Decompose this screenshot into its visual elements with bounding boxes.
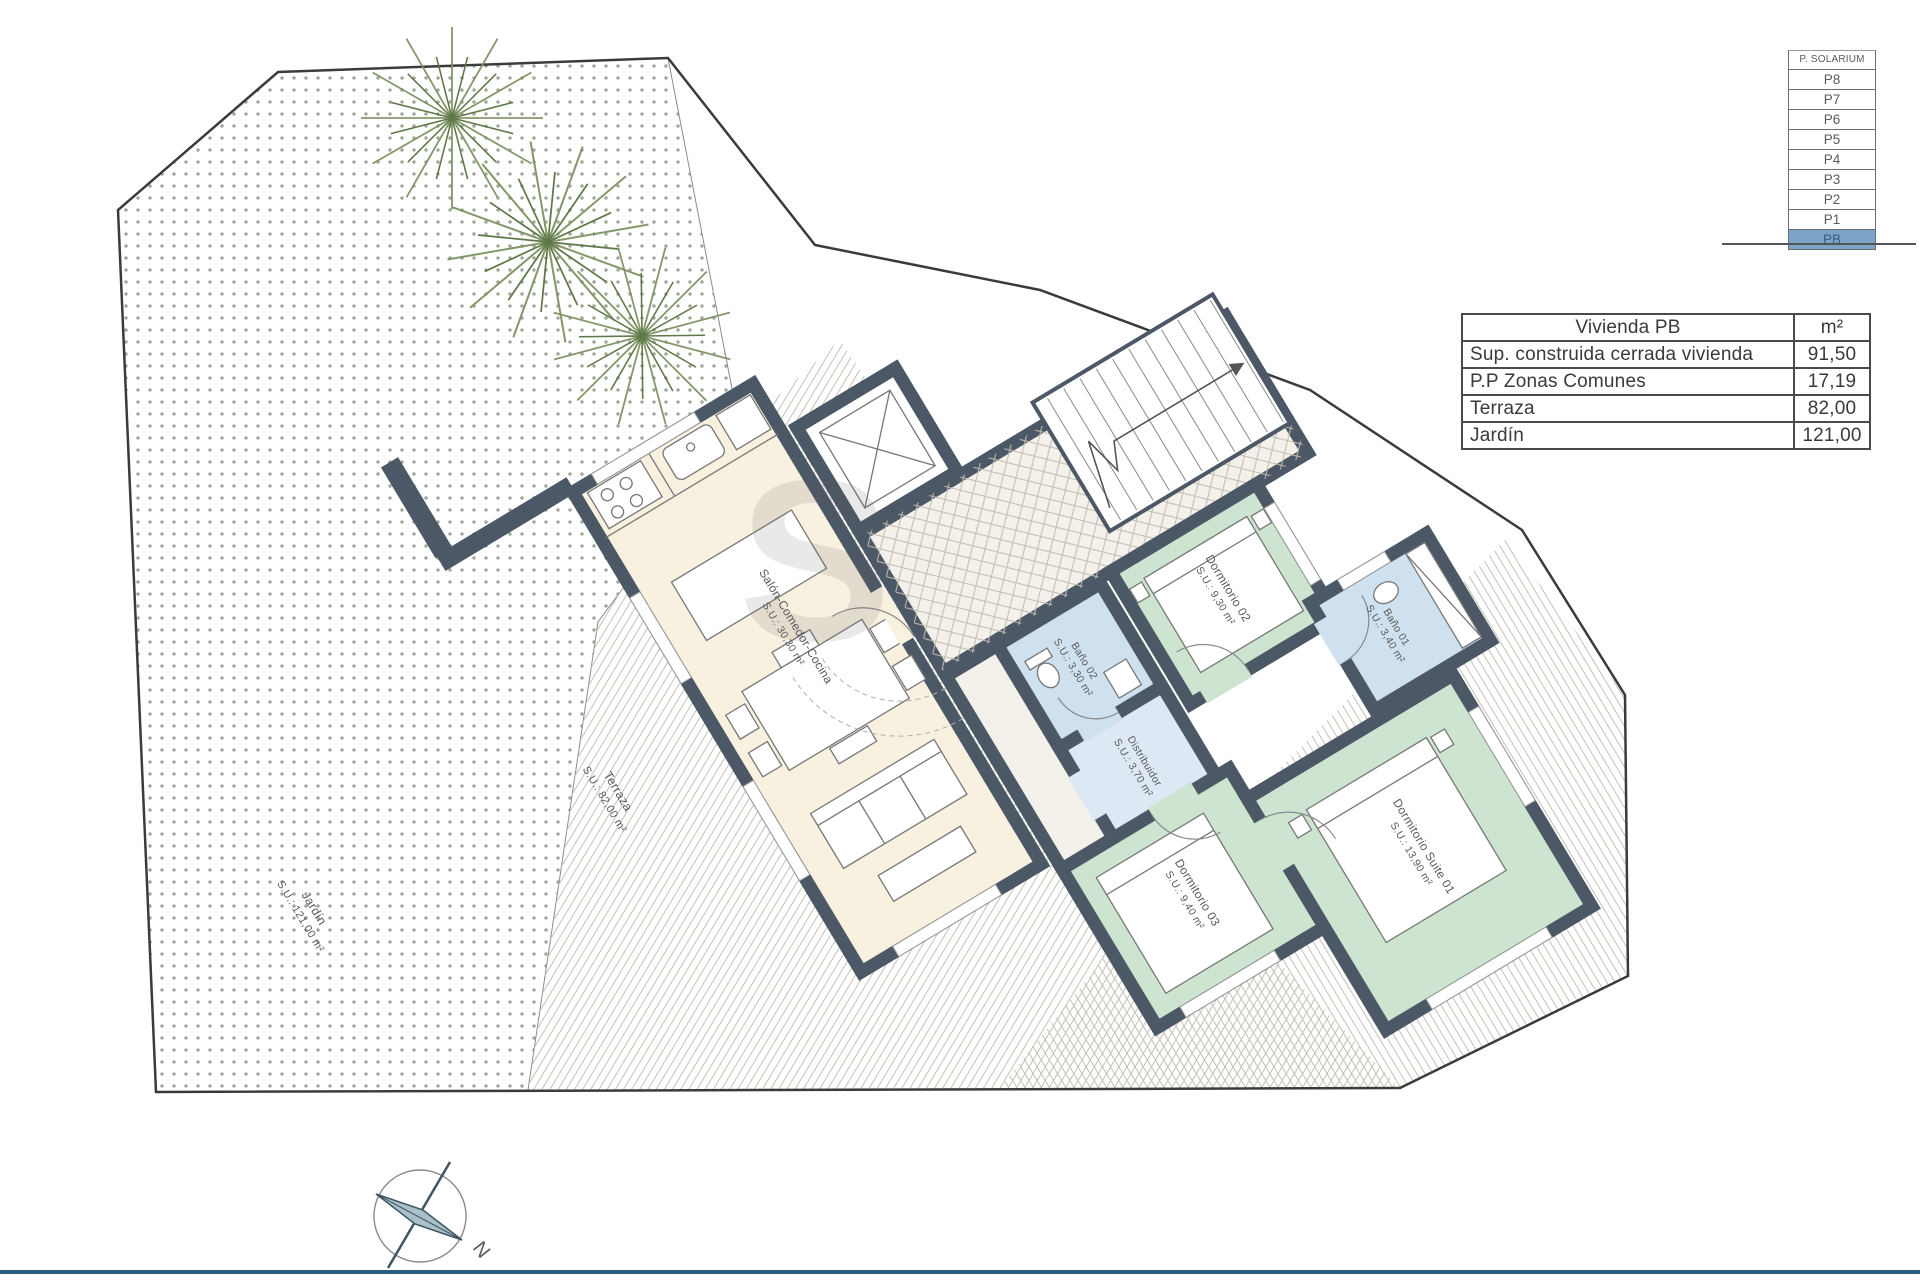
floor-row-p8[interactable]: P8 [1789,70,1875,90]
row-value: 82,00 [1793,396,1869,421]
row-label: Terraza [1463,396,1793,421]
row-label: Sup. construida cerrada vivienda [1463,342,1793,367]
floor-row-p5[interactable]: P5 [1789,130,1875,150]
area-table-row-construida: Sup. construida cerrada vivienda 91,50 [1463,340,1869,367]
row-label: Jardín [1463,423,1793,448]
floor-row-p6[interactable]: P6 [1789,110,1875,130]
row-value: 17,19 [1793,369,1869,394]
area-table-unit: m² [1793,315,1869,340]
area-table-row-jardin: Jardín 121,00 [1463,421,1869,448]
row-value: 121,00 [1793,423,1869,448]
watermark-logo: S [738,432,891,689]
floor-row-p4[interactable]: P4 [1789,150,1875,170]
area-table-title: Vivienda PB [1463,315,1793,340]
footer-accent-line [0,1270,1920,1274]
row-value: 91,50 [1793,342,1869,367]
site-plan-svg: Salón-Comedor-Cocina S.U.: 30,30 m² Dorm… [0,0,1920,1280]
floor-row-p7[interactable]: P7 [1789,90,1875,110]
area-table-row-comunes: P.P Zonas Comunes 17,19 [1463,367,1869,394]
area-table: Vivienda PB m² Sup. construida cerrada v… [1461,313,1871,450]
floor-row-p2[interactable]: P2 [1789,190,1875,210]
floor-selector-baseline [1722,243,1916,245]
north-label: N [468,1238,494,1263]
floor-plan-page: Salón-Comedor-Cocina S.U.: 30,30 m² Dorm… [0,0,1920,1280]
floor-row-pb-active[interactable]: PB [1789,230,1875,250]
floor-row-p1[interactable]: P1 [1789,210,1875,230]
floor-selector: P. SOLARIUM P8 P7 P6 P5 P4 P3 P2 P1 PB [1788,50,1876,250]
compass-rose: N [374,1162,494,1268]
floor-selector-header: P. SOLARIUM [1789,51,1875,70]
row-label: P.P Zonas Comunes [1463,369,1793,394]
floor-row-p3[interactable]: P3 [1789,170,1875,190]
area-table-header-row: Vivienda PB m² [1463,315,1869,340]
area-table-row-terraza: Terraza 82,00 [1463,394,1869,421]
